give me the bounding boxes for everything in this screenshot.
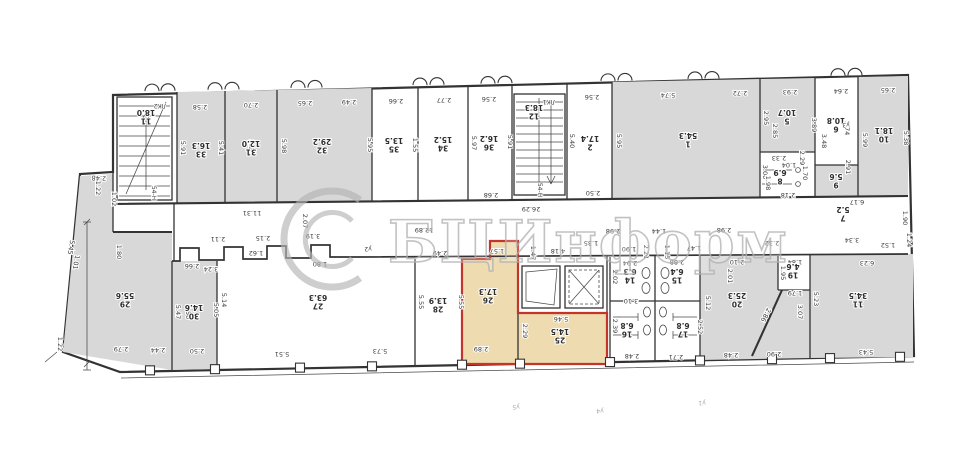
wall-pilaster: [516, 359, 525, 368]
dim-label: 5.46: [554, 315, 568, 323]
dim-label: 1.70: [801, 166, 809, 180]
dim-label: 2.56: [585, 93, 599, 101]
window-bump: [705, 72, 719, 79]
dim-label: 2.56: [482, 95, 496, 103]
annotation-label: ЛК2: [154, 102, 167, 109]
dim-label: 1.52: [881, 241, 895, 249]
window-bump: [601, 74, 615, 81]
dim-label: 5.97: [470, 136, 478, 150]
dim-label: 5.55: [417, 295, 425, 309]
dim-label: 3.34: [845, 236, 859, 244]
watermark-text: БЦИнформ: [388, 208, 789, 276]
annotation-label: у3: [842, 121, 850, 128]
window-bump: [308, 80, 322, 87]
room-label: 176.8: [676, 321, 689, 339]
dim-label: 3.07: [796, 305, 804, 319]
dim-label: 1.62: [249, 249, 263, 257]
dim-label: 2.48: [625, 352, 639, 360]
dim-label: 2.18: [781, 191, 795, 199]
dim-label: 5.98: [280, 139, 288, 153]
annotation-label: у1: [698, 399, 706, 406]
dim-label: 5.51: [275, 350, 289, 358]
wall-pilaster: [696, 356, 705, 365]
annotation-label: у5: [512, 403, 520, 410]
window-bump: [618, 73, 632, 80]
window-bump: [848, 68, 862, 75]
dim-label: 2.89: [474, 345, 488, 353]
dim-label: 5.47: [174, 305, 182, 319]
dim-label: 2.71: [669, 353, 683, 361]
dim-label: 3.24: [204, 265, 218, 273]
dim-label: 1.22: [94, 181, 102, 195]
dim-label: 11.31: [243, 209, 262, 217]
dim-label: 2.29: [521, 324, 529, 338]
window-bump: [413, 78, 427, 85]
dim-label: 6.23: [860, 259, 874, 267]
dim-label: 2.39: [611, 319, 619, 333]
dim-label: 3.10: [624, 297, 638, 305]
dim-label: 2.44: [151, 346, 165, 354]
dim-label: 1.80: [115, 245, 123, 259]
annotation-label: ЛК1: [543, 98, 556, 105]
wall-pilaster: [296, 363, 305, 372]
dim-label: 2.70: [244, 101, 258, 109]
wall-pilaster: [606, 358, 615, 367]
dim-label: 3.48: [820, 134, 828, 148]
dim-label: 3.89: [810, 118, 818, 132]
window-bump: [831, 69, 845, 76]
dim-label: 2.33: [772, 154, 786, 162]
wall-pilaster: [458, 360, 467, 369]
wall-pilaster: [146, 366, 155, 375]
dim-label: 1.55: [411, 138, 419, 152]
dim-label: 5.95: [615, 134, 623, 148]
annotation-label: у2: [364, 245, 372, 252]
dim-label: 1.90: [901, 211, 909, 225]
dim-label: 1.98: [764, 176, 772, 190]
annotation-label: у4: [596, 407, 604, 414]
floor-plan-page: 2.582.702.652.492.662.772.562.565.742.72…: [0, 0, 955, 450]
window-bump: [161, 84, 175, 91]
window-bump: [498, 76, 512, 83]
dim-label: 2.85: [771, 124, 779, 138]
dim-label: 5.40: [568, 134, 576, 148]
dim-label: 2.29: [798, 151, 806, 165]
dim-label: 1.02: [110, 192, 118, 206]
dim-label: 5.14: [220, 293, 228, 307]
annotation-label: 54-Н: [150, 186, 157, 200]
dim-label: 2.68: [484, 191, 498, 199]
dim-label: 2.52: [696, 320, 704, 334]
dim-label: 2.50: [586, 189, 600, 197]
dim-label: 2.58: [193, 103, 207, 111]
window-bump: [145, 84, 159, 91]
dim-label: 5.91: [506, 135, 514, 149]
dim-label: 5.95: [366, 138, 374, 152]
dim-label: 2.11: [211, 235, 225, 243]
window-bump: [430, 78, 444, 85]
dim-label: 2.65: [881, 86, 895, 94]
dim-label: 2.72: [733, 89, 747, 97]
window-bump: [481, 77, 495, 84]
dim-label: 5.05: [212, 303, 220, 317]
dim-label: 6.17: [850, 198, 864, 206]
dim-label: 5.43: [859, 348, 873, 356]
dim-label: 5.45: [66, 240, 76, 256]
wall-pilaster: [826, 354, 835, 363]
window-bump: [225, 82, 239, 89]
window-bump: [208, 83, 222, 90]
wall-pilaster: [368, 362, 377, 371]
dim-label: 2.66: [389, 97, 403, 105]
dim-label: 5.38: [902, 131, 910, 145]
dim-label: 1.22: [56, 337, 64, 351]
annotation-label: 54-Н: [536, 183, 543, 197]
dim-label: 1.79: [788, 289, 802, 297]
dim-label: 2.64: [834, 87, 848, 95]
dim-label: 2.90: [767, 350, 781, 358]
dim-label: 5.91: [179, 141, 187, 155]
room-label: 166.8: [620, 321, 633, 339]
window-bump: [291, 81, 305, 88]
dim-label: 2.15: [256, 234, 270, 242]
dim-label: 1.24: [905, 233, 913, 247]
dim-label: 2.48: [724, 351, 738, 359]
dim-label: 2.79: [114, 345, 128, 353]
dim-label: 2.95: [762, 111, 770, 125]
dim-label: 5.41: [217, 141, 225, 155]
wall-pilaster: [896, 352, 905, 361]
dim-label: 2.65: [298, 99, 312, 107]
dim-label: 5.12: [704, 296, 712, 310]
dim-label: 5.73: [373, 347, 387, 355]
dim-label: 2.49: [342, 98, 356, 106]
dim-label: 5.99: [861, 133, 869, 147]
dim-label: 2.93: [783, 88, 797, 96]
dim-label: 2.91: [844, 160, 852, 174]
dim-label: 2.50: [190, 347, 204, 355]
dim-label: 5.23: [812, 292, 820, 306]
dim-label: 2.66: [185, 262, 199, 270]
dim-label: 5.55: [457, 295, 465, 309]
wall-pilaster: [211, 365, 220, 374]
dim-label: 2.77: [437, 96, 451, 104]
dim-label: 5.74: [661, 91, 675, 99]
window-bump: [688, 72, 702, 79]
floor-plan-svg: 2.582.702.652.492.662.772.562.565.742.72…: [0, 0, 955, 450]
